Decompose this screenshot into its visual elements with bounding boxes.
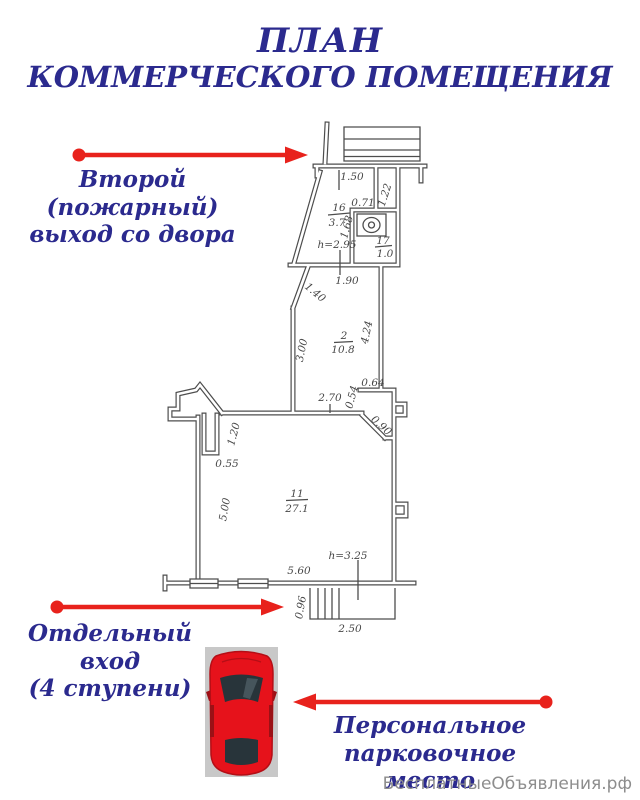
dim-120: 1.20	[225, 421, 243, 447]
dim-064: 0.64	[361, 377, 384, 389]
floor-plan-canvas: 1.50 1.22 0.71 1.68 h=2.95 1.90 1.40 3.0…	[0, 0, 640, 800]
dim-h325: h=3.25	[329, 550, 368, 562]
dimension-labels: 1.50 1.22 0.71 1.68 h=2.95 1.90 1.40 3.0…	[215, 171, 394, 635]
parking-arrow	[293, 694, 553, 711]
floor-plan: 1.50 1.22 0.71 1.68 h=2.95 1.90 1.40 3.0…	[165, 124, 425, 635]
toilet-icon	[357, 214, 386, 236]
dim-140: 1.40	[302, 281, 328, 305]
room16-number: 16	[332, 202, 346, 214]
room11-number: 11	[290, 488, 303, 500]
dim-424: 4.24	[359, 320, 376, 346]
porch-steps	[310, 588, 395, 619]
dim-071: 0.71	[351, 197, 374, 209]
entrance-arrow	[51, 599, 285, 616]
fire-exit-arrow	[73, 147, 309, 164]
dim-122: 1.22	[376, 182, 395, 208]
dim-560: 5.60	[287, 565, 311, 577]
staircase	[344, 127, 420, 161]
room11-area: 27.1	[284, 503, 308, 515]
dim-190: 1.90	[335, 275, 359, 287]
room2-area: 10.8	[331, 344, 355, 356]
dim-270: 2.70	[317, 392, 342, 404]
room17-area: 1.0	[377, 248, 394, 260]
dim-300: 3.00	[294, 337, 311, 363]
dim-150: 1.50	[340, 171, 364, 183]
dim-250: 2.50	[337, 623, 362, 635]
dim-055: 0.55	[215, 458, 239, 470]
dim-054: 0.54	[343, 384, 361, 410]
dim-h295: h=2.95	[318, 239, 357, 251]
room17-number: 17	[376, 235, 390, 247]
room16-area: 3.7	[329, 217, 346, 229]
room2-number: 2	[340, 330, 348, 342]
car-image	[205, 647, 278, 777]
dim-096: 0.96	[293, 595, 309, 620]
dim-500: 5.00	[217, 497, 233, 522]
